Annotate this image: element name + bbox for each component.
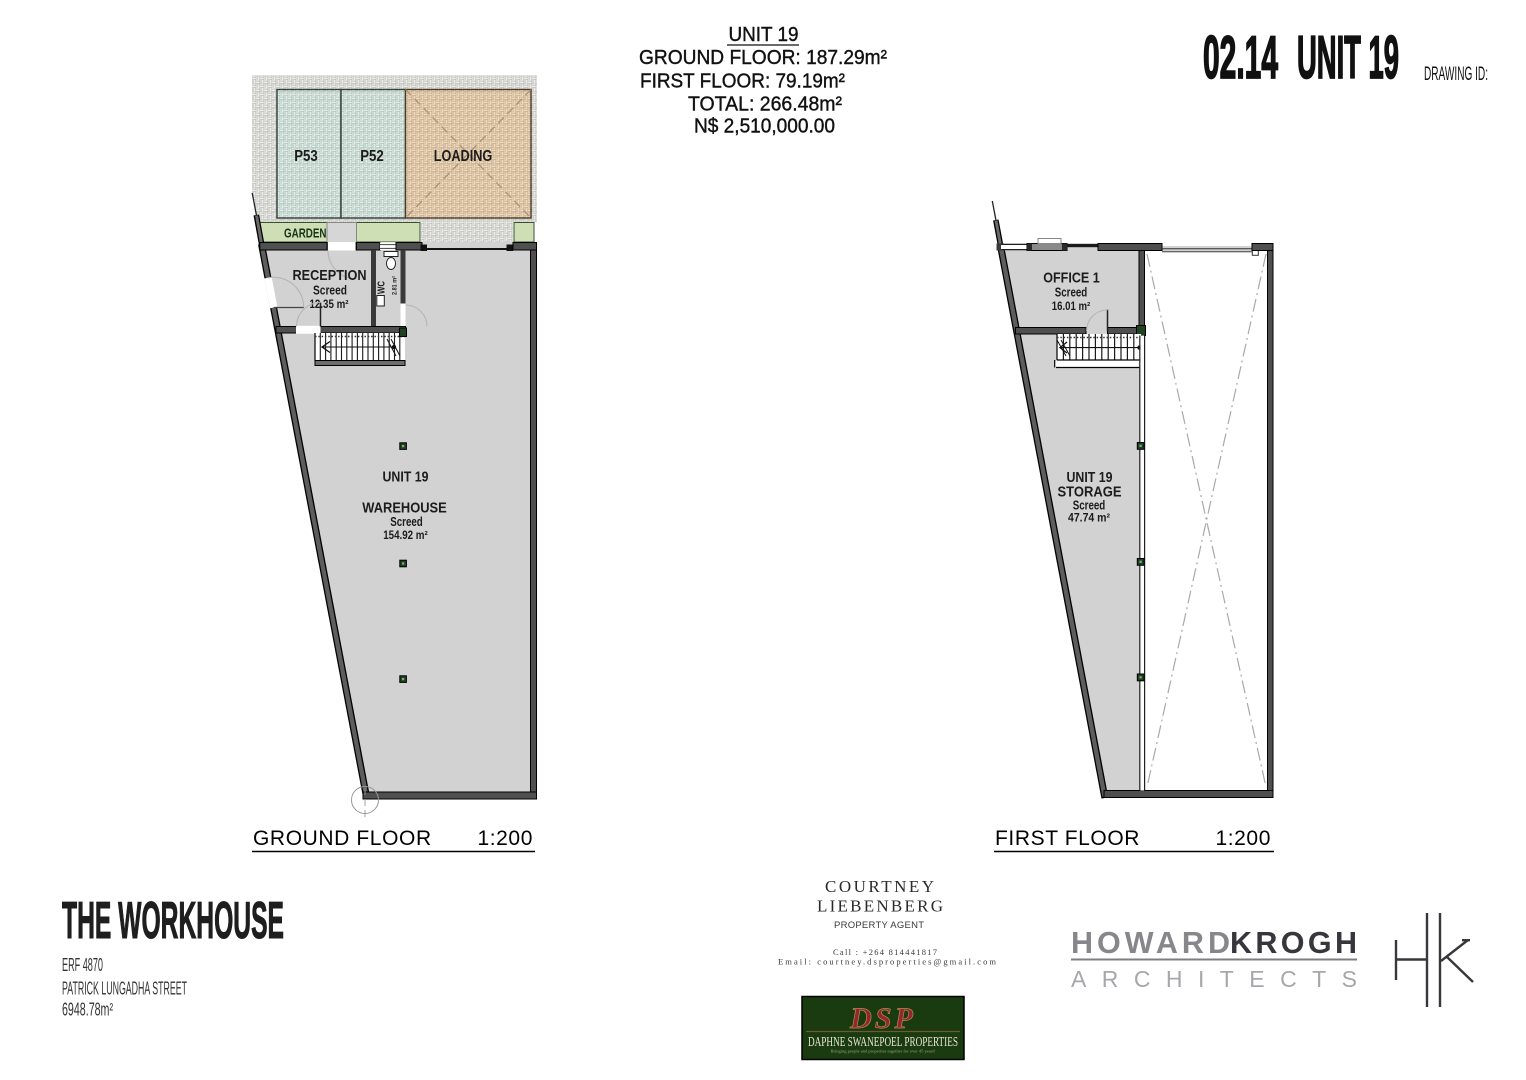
svg-text:ARCHITECTS: ARCHITECTS — [1071, 966, 1357, 992]
svg-text:Screed: Screed — [1073, 498, 1106, 513]
svg-text:FIRST FLOOR: 79.19m²: FIRST FLOOR: 79.19m² — [640, 70, 845, 93]
svg-text:GARDEN: GARDEN — [284, 226, 327, 241]
svg-text:UNIT 19: UNIT 19 — [729, 23, 799, 46]
svg-text:Email: courtney.dsproperties@g: Email: courtney.dsproperties@gmail.com — [778, 957, 996, 967]
svg-text:THE WORKHOUSE: THE WORKHOUSE — [62, 892, 284, 950]
svg-text:GROUND FLOOR: GROUND FLOOR — [253, 827, 432, 850]
svg-text:Screed: Screed — [1055, 285, 1088, 300]
svg-text:ERF 4870: ERF 4870 — [62, 955, 103, 975]
svg-text:PROPERTY AGENT: PROPERTY AGENT — [834, 920, 924, 931]
svg-text:GROUND FLOOR: 187.29m²: GROUND FLOOR: 187.29m² — [639, 46, 887, 69]
svg-text:LIEBENBERG: LIEBENBERG — [817, 897, 943, 916]
svg-text:P52: P52 — [360, 148, 384, 165]
svg-text:FIRST FLOOR: FIRST FLOOR — [995, 827, 1140, 850]
svg-text:KROGH: KROGH — [1230, 926, 1357, 960]
svg-text:2.81 m²: 2.81 m² — [392, 275, 399, 295]
svg-text:WC: WC — [376, 281, 388, 294]
svg-text:TOTAL: 266.48m²: TOTAL: 266.48m² — [688, 93, 842, 116]
svg-text:12.35 m²: 12.35 m² — [310, 299, 349, 311]
svg-text:LOADING: LOADING — [434, 148, 493, 165]
svg-text:Bringing people and properties: Bringing people and properties together … — [831, 1049, 936, 1054]
svg-text:P53: P53 — [294, 148, 318, 165]
svg-text:PATRICK LUNGADHA STREET: PATRICK LUNGADHA STREET — [62, 979, 187, 999]
svg-text:Call : +264 814441817: Call : +264 814441817 — [833, 947, 937, 957]
svg-text:1:200: 1:200 — [1215, 827, 1271, 850]
svg-text:UNIT 19: UNIT 19 — [1297, 24, 1399, 91]
svg-text:N$ 2,510,000.00: N$ 2,510,000.00 — [694, 115, 835, 138]
svg-text:02.14: 02.14 — [1203, 24, 1278, 91]
svg-text:HOWARD: HOWARD — [1071, 926, 1230, 960]
svg-text:47.74 m²: 47.74 m² — [1068, 513, 1110, 525]
svg-text:Screed: Screed — [390, 514, 423, 529]
svg-text:DSP: DSP — [849, 1002, 916, 1035]
svg-text:154.92 m²: 154.92 m² — [383, 530, 428, 542]
svg-text:16.01 m²: 16.01 m² — [1052, 301, 1091, 313]
svg-text:DRAWING ID:: DRAWING ID: — [1424, 64, 1488, 85]
svg-text:Screed: Screed — [313, 283, 347, 298]
svg-text:1:200: 1:200 — [477, 827, 533, 850]
svg-text:UNIT 19: UNIT 19 — [383, 469, 429, 486]
svg-text:COURTNEY: COURTNEY — [825, 877, 934, 896]
svg-text:6948.78m²: 6948.78m² — [62, 1000, 113, 1020]
svg-text:RECEPTION: RECEPTION — [293, 267, 367, 284]
